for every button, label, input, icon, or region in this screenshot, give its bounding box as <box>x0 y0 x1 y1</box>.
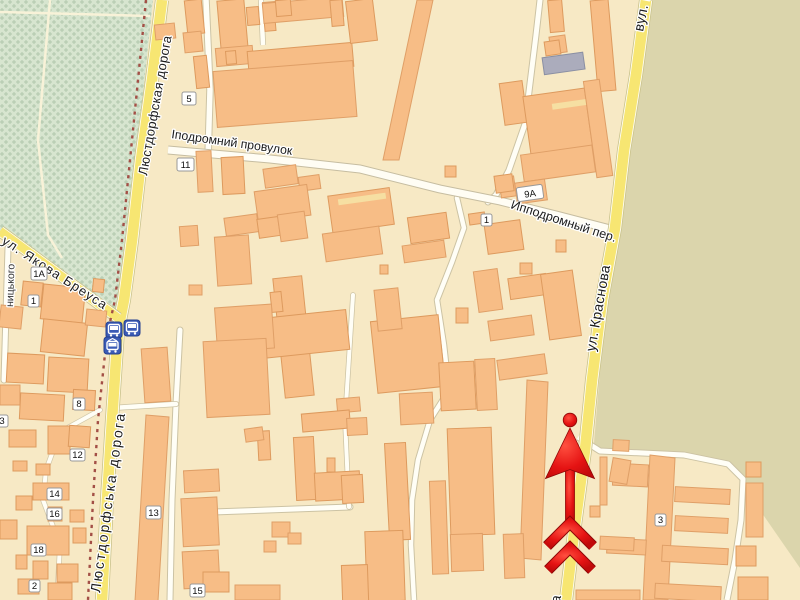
svg-text:1: 1 <box>484 215 489 226</box>
svg-text:1А: 1А <box>33 269 45 280</box>
svg-text:1: 1 <box>31 296 36 307</box>
svg-text:14: 14 <box>49 489 60 500</box>
svg-text:13: 13 <box>148 508 159 519</box>
svg-text:18: 18 <box>33 545 44 556</box>
svg-text:12: 12 <box>72 450 83 461</box>
svg-text:15: 15 <box>192 586 203 597</box>
svg-text:3: 3 <box>0 416 5 427</box>
svg-text:3: 3 <box>658 515 663 526</box>
svg-text:9А: 9А <box>524 188 538 201</box>
svg-text:16: 16 <box>49 509 60 520</box>
svg-text:ницького: ницького <box>4 263 18 307</box>
svg-text:8: 8 <box>76 399 81 410</box>
svg-text:11: 11 <box>181 160 191 171</box>
svg-text:5: 5 <box>186 94 191 105</box>
svg-text:2: 2 <box>32 581 37 592</box>
